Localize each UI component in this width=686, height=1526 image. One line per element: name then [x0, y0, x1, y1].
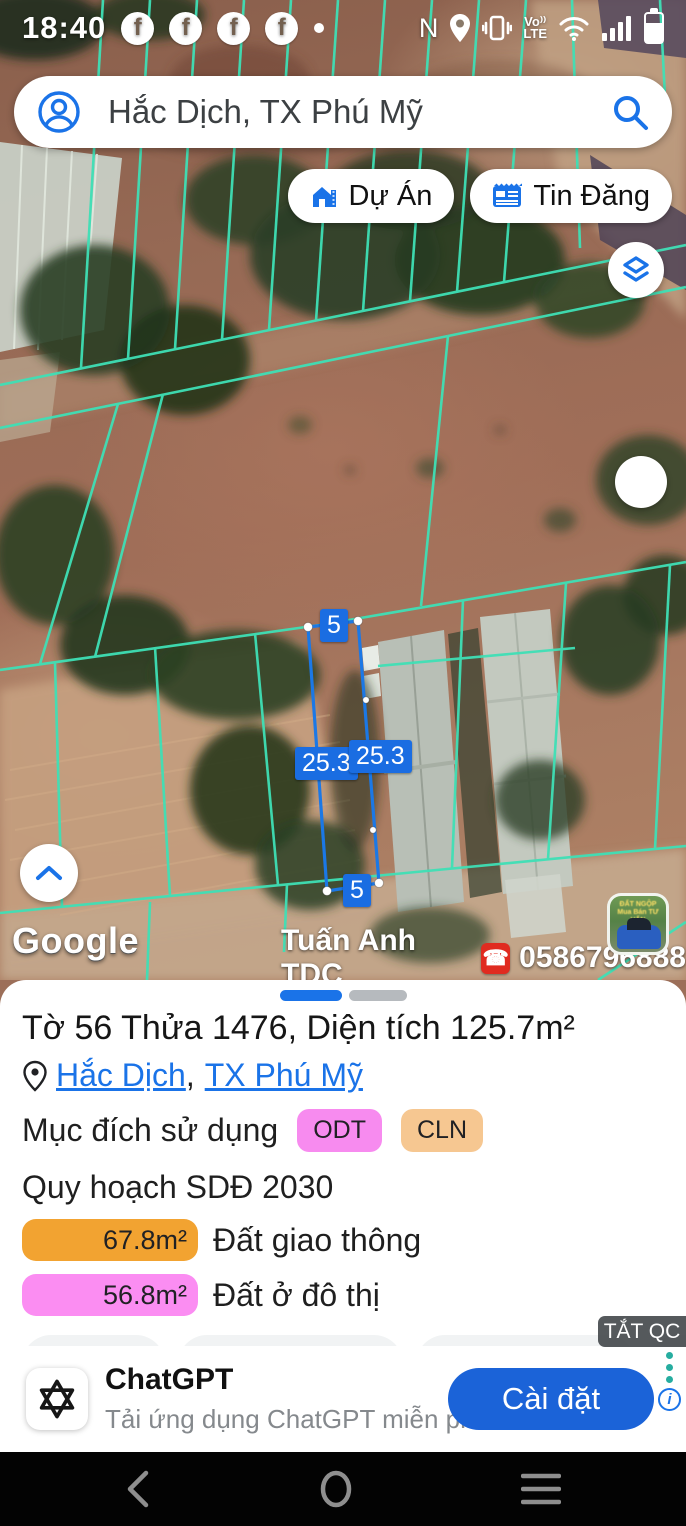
- listings-chip[interactable]: Tin Đăng: [470, 169, 672, 223]
- ad-menu-dots-icon[interactable]: [666, 1352, 673, 1383]
- map-view[interactable]: 5 25.3 25.3 5 18:40 f f f f N: [0, 0, 686, 980]
- map-layers-button[interactable]: [608, 242, 664, 298]
- measurement-label-bottom: 5: [343, 874, 371, 907]
- battery-icon: [644, 12, 664, 44]
- facebook-notification-icon: f: [121, 12, 154, 45]
- facebook-notification-icon: f: [217, 12, 250, 45]
- volte-icon: Vo⁾⁾LTE: [523, 16, 547, 40]
- parcel-title: Tờ 56 Thửa 1476, Diện tích 125.7m²: [22, 1009, 686, 1048]
- town-link[interactable]: TX Phú Mỹ: [205, 1057, 363, 1094]
- search-icon[interactable]: [610, 92, 650, 132]
- newspaper-icon: [492, 182, 522, 210]
- back-button[interactable]: [125, 1469, 151, 1509]
- location-pin-icon: [22, 1060, 48, 1092]
- ad-info-icon[interactable]: i: [658, 1388, 681, 1411]
- dismiss-ad-button[interactable]: TẮT QC: [598, 1316, 686, 1347]
- plan-label: Quy hoạch SDĐ 2030: [22, 1169, 686, 1206]
- phone-screen: 5 25.3 25.3 5 18:40 f f f f N: [0, 0, 686, 1526]
- zone-row: 56.8m² Đất ở đô thị: [22, 1274, 686, 1316]
- chevron-up-icon: [34, 863, 64, 883]
- recents-menu-button[interactable]: [521, 1472, 561, 1506]
- zone-label: Đất giao thông: [213, 1222, 421, 1259]
- search-input[interactable]: Hắc Dịch, TX Phú Mỹ: [108, 93, 610, 131]
- wifi-icon: [558, 14, 590, 42]
- phone-icon: ☎: [481, 943, 510, 974]
- openai-knot-icon: [35, 1377, 79, 1421]
- contact-name: Tuấn Anh TDC: [281, 924, 472, 980]
- panel-page-indicator[interactable]: [22, 990, 664, 1001]
- measurement-label-right: 25.3: [349, 740, 412, 773]
- location-pin-icon: [449, 13, 471, 43]
- facebook-notification-icon: f: [265, 12, 298, 45]
- status-bar: 18:40 f f f f N Vo⁾⁾LTE: [0, 0, 686, 56]
- nfc-icon: N: [419, 13, 439, 44]
- zone-area-badge: 56.8m²: [22, 1274, 198, 1316]
- purpose-badge-cln[interactable]: CLN: [401, 1109, 483, 1152]
- layers-icon: [618, 252, 654, 288]
- page-indicator-active: [280, 990, 342, 1001]
- home-button[interactable]: [318, 1467, 354, 1511]
- zone-area-badge: 67.8m²: [22, 1219, 198, 1261]
- purpose-label: Mục đích sử dụng: [22, 1112, 278, 1149]
- install-button[interactable]: Cài đặt: [448, 1368, 654, 1430]
- chatgpt-logo: [26, 1368, 88, 1430]
- purpose-badge-odt[interactable]: ODT: [297, 1109, 382, 1152]
- more-notifications-icon: [314, 23, 324, 33]
- building-icon: [310, 182, 338, 210]
- facebook-notification-icon: f: [169, 12, 202, 45]
- location-separator: ,: [186, 1057, 195, 1094]
- page-indicator-inactive: [349, 990, 407, 1001]
- android-navigation-bar: [0, 1452, 686, 1526]
- map-chip-row: Dự Án Tin Đăng: [288, 169, 673, 223]
- map-control-button[interactable]: [615, 456, 667, 508]
- zone-row: 67.8m² Đất giao thông: [22, 1219, 686, 1261]
- search-bar[interactable]: Hắc Dịch, TX Phú Mỹ: [14, 76, 672, 148]
- app-install-ad[interactable]: ChatGPT Tải ứng dụng ChatGPT miễn phí và…: [0, 1346, 686, 1452]
- location-row: Hắc Dịch,TX Phú Mỹ: [22, 1057, 686, 1094]
- vibrate-icon: [482, 13, 512, 43]
- clock: 18:40: [22, 10, 106, 46]
- zone-label: Đất ở đô thị: [213, 1277, 380, 1314]
- account-icon[interactable]: [36, 89, 82, 135]
- ward-link[interactable]: Hắc Dịch: [56, 1057, 186, 1094]
- car-image: [617, 925, 661, 949]
- measurement-label-top: 5: [320, 609, 348, 642]
- projects-chip[interactable]: Dự Án: [288, 169, 455, 223]
- land-purpose-row: Mục đích sử dụng ODT CLN: [22, 1109, 686, 1152]
- signal-strength-icon: [601, 14, 631, 42]
- listings-chip-label: Tin Đăng: [533, 180, 650, 213]
- google-watermark: Google: [12, 920, 139, 962]
- projects-chip-label: Dự Án: [349, 180, 433, 213]
- listing-photo-thumbnail[interactable]: ĐẤT NGỘPMua Bán TƯ VẤN: [607, 893, 669, 955]
- collapse-panel-button[interactable]: [20, 844, 78, 902]
